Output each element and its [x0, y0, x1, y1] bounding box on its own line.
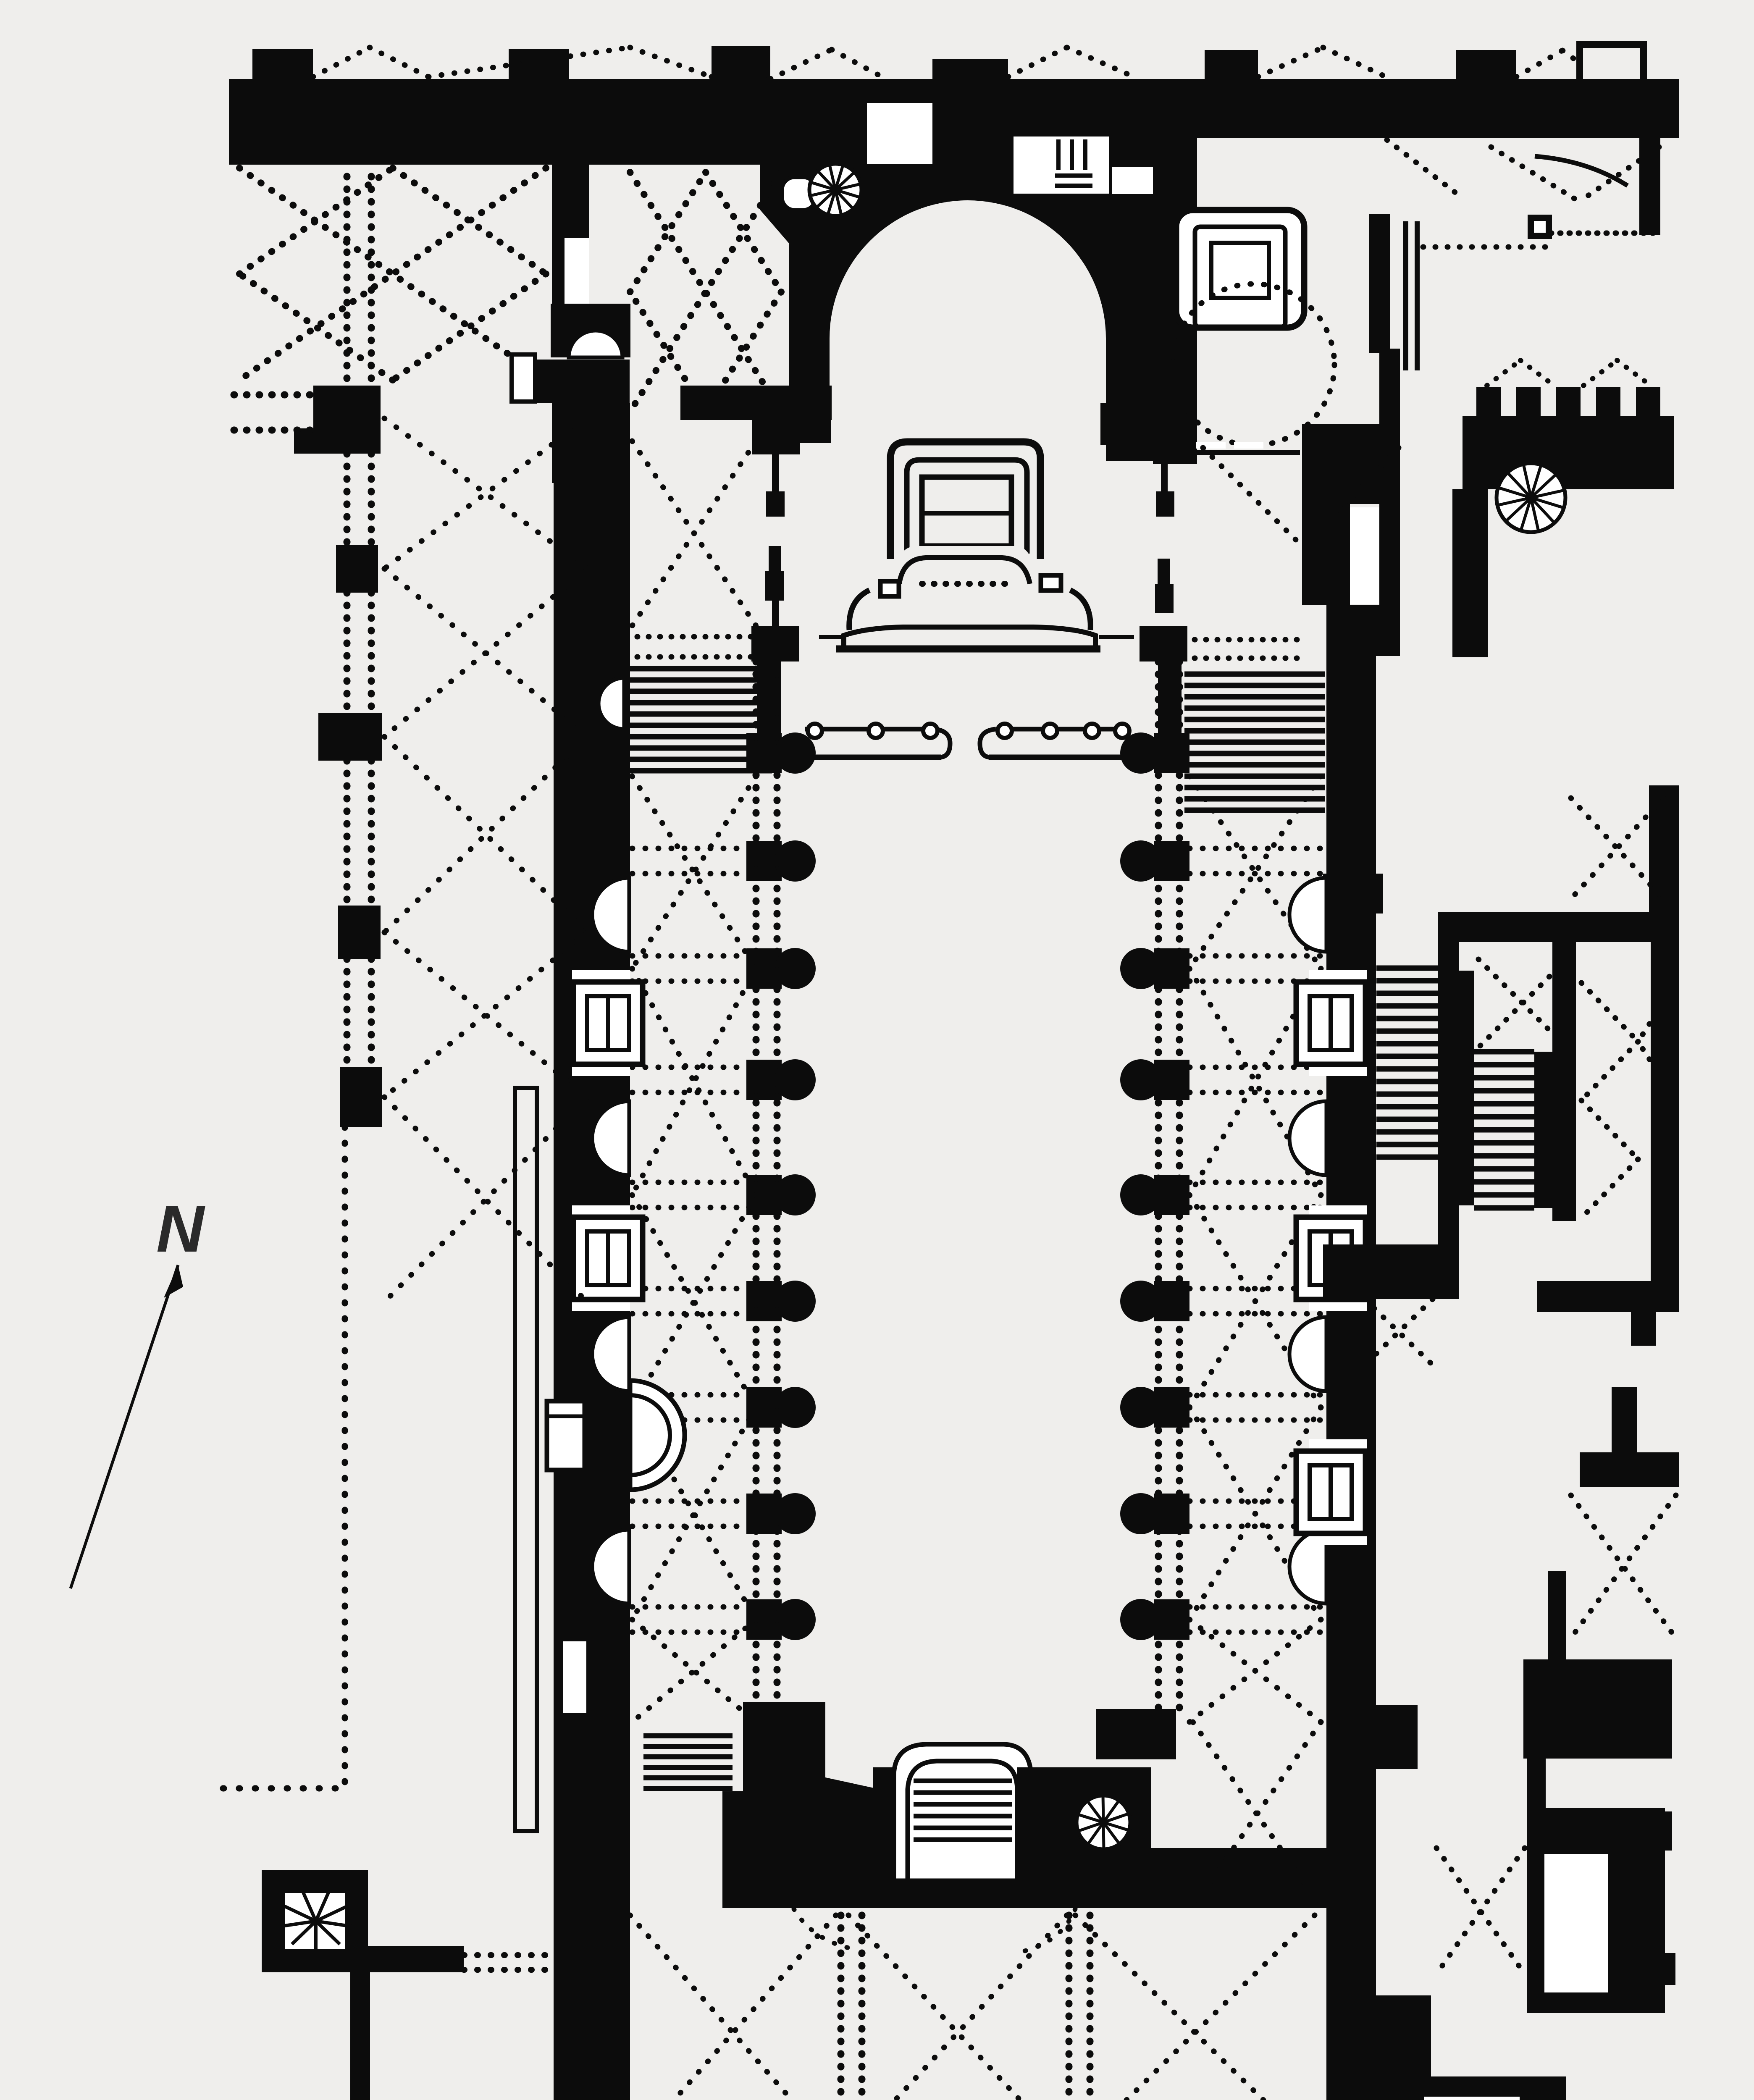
svg-text:N: N: [156, 1192, 205, 1266]
